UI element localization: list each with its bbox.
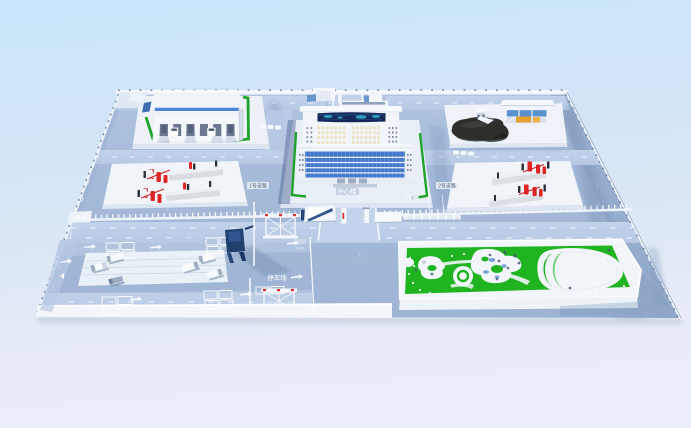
- svg-text:1号道路: 1号道路: [249, 183, 267, 190]
- svg-text:中心楼: 中心楼: [337, 187, 357, 196]
- svg-text:停车场: 停车场: [267, 273, 287, 282]
- svg-text:2号道路: 2号道路: [438, 183, 456, 190]
